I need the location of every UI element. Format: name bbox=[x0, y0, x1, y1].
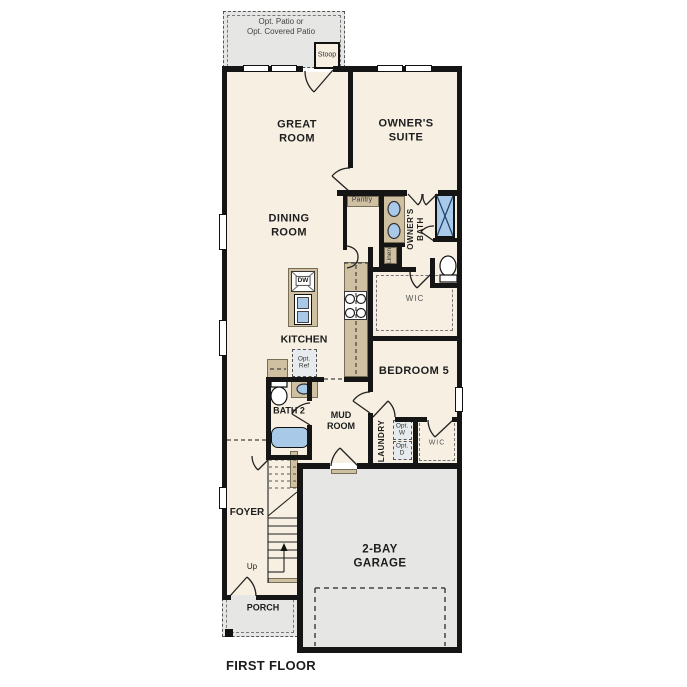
up-label: Up bbox=[247, 562, 257, 572]
window-left-kitchen bbox=[219, 320, 227, 356]
wall-suite-bottom-2 bbox=[438, 190, 462, 196]
wall-bath2-left bbox=[266, 377, 271, 460]
foyer-label: FOYER bbox=[230, 507, 264, 520]
bath2-label: BATH 2 bbox=[273, 405, 305, 416]
bedroom-wic-label: WIC bbox=[429, 440, 446, 449]
wall-shower-bottom bbox=[433, 238, 457, 242]
wall-bedroom5-left-lower bbox=[368, 413, 373, 463]
wall-bath2-bottom bbox=[266, 455, 312, 460]
dishwasher-label: DW bbox=[296, 276, 311, 286]
owners-bath-label: OWNER'S BATH bbox=[406, 208, 426, 249]
owners-wic-label: WIC bbox=[406, 294, 425, 304]
window-top-2 bbox=[271, 65, 297, 72]
front-door-arc bbox=[230, 577, 256, 596]
wall-right bbox=[457, 66, 462, 653]
wall-foyer-bottom-right bbox=[256, 595, 302, 600]
owners-suite-label: OWNER'S SUITE bbox=[379, 117, 434, 145]
stairs bbox=[268, 455, 297, 583]
wall-laundry-right bbox=[413, 422, 418, 463]
opt-ref-label: Opt. Ref bbox=[298, 356, 310, 371]
wall-foyer-bottom-left bbox=[222, 595, 231, 600]
wall-bedroom5-top bbox=[368, 336, 462, 341]
garage-door-dashes bbox=[315, 588, 445, 646]
wall-garage-left bbox=[297, 463, 303, 653]
mud-room-door-arc bbox=[353, 392, 370, 413]
floor-plan: Opt. Patio or Opt. Covered Patio Stoop G… bbox=[0, 0, 687, 687]
owners-bath-double-door bbox=[408, 194, 437, 205]
wall-garage-bottom bbox=[297, 647, 462, 653]
bedroom5-door-arc bbox=[373, 401, 395, 417]
laundry-label: LAUNDRY bbox=[377, 420, 387, 462]
wall-kitchen-wic bbox=[368, 247, 373, 392]
wall-pantry-right bbox=[379, 194, 384, 268]
wall-owners-wic-top bbox=[368, 267, 416, 272]
opt-washer-label: Opt. W bbox=[396, 423, 408, 438]
wall-bedroom5-bottom-2 bbox=[452, 417, 462, 422]
linen-label: Linen bbox=[386, 248, 394, 264]
pantry-label: Pantry bbox=[352, 197, 372, 206]
kitchen-label: KITCHEN bbox=[281, 333, 328, 346]
stoop-label: Stoop bbox=[318, 52, 336, 61]
wall-bedroom5-bottom-1 bbox=[395, 417, 427, 422]
owners-toilet bbox=[440, 256, 457, 282]
wall-greatroom-suite-divider bbox=[348, 66, 353, 168]
wall-garage-top-2 bbox=[357, 463, 462, 469]
wall-bath2-top bbox=[267, 377, 324, 382]
wall-bath2-right-upper bbox=[307, 377, 312, 401]
plan-linework bbox=[0, 0, 687, 687]
mud-room-label: MUD ROOM bbox=[327, 410, 355, 433]
window-left-foyer bbox=[219, 487, 227, 509]
great-room-label: GREAT ROOM bbox=[277, 118, 317, 146]
vanity-sinks bbox=[388, 202, 400, 239]
wall-toilet-niche-bottom bbox=[430, 283, 457, 288]
window-left-dining bbox=[219, 214, 227, 250]
up-arrow bbox=[281, 543, 288, 551]
bedroom5-label: BEDROOM 5 bbox=[379, 365, 449, 379]
bedroom-wic-door-arc bbox=[428, 420, 453, 437]
wall-bath2-top-right bbox=[344, 377, 368, 382]
window-top-1 bbox=[243, 65, 269, 72]
shower-x-symbol bbox=[437, 196, 453, 236]
plan-title: FIRST FLOOR bbox=[226, 658, 316, 674]
opt-patio-label: Opt. Patio or Opt. Covered Patio bbox=[247, 17, 315, 37]
pantry-double-doors bbox=[347, 246, 358, 268]
mud-garage-door-arc bbox=[331, 448, 358, 466]
opt-dryer-label: Opt. D bbox=[396, 443, 408, 458]
window-right-bedroom5 bbox=[455, 387, 463, 412]
stoop-door-arc bbox=[305, 70, 333, 92]
porch-label: PORCH bbox=[247, 602, 280, 613]
window-top-3 bbox=[377, 65, 403, 72]
garage-label: 2-BAY GARAGE bbox=[354, 543, 407, 572]
dining-room-label: DINING ROOM bbox=[269, 212, 310, 240]
bath2-toilet bbox=[271, 381, 287, 405]
wall-pantry-left bbox=[343, 194, 347, 250]
wall-garage-top-1 bbox=[303, 463, 330, 469]
great-room-door-arc bbox=[332, 168, 350, 192]
window-top-4 bbox=[405, 65, 432, 72]
wall-suite-bottom-1 bbox=[337, 190, 407, 196]
